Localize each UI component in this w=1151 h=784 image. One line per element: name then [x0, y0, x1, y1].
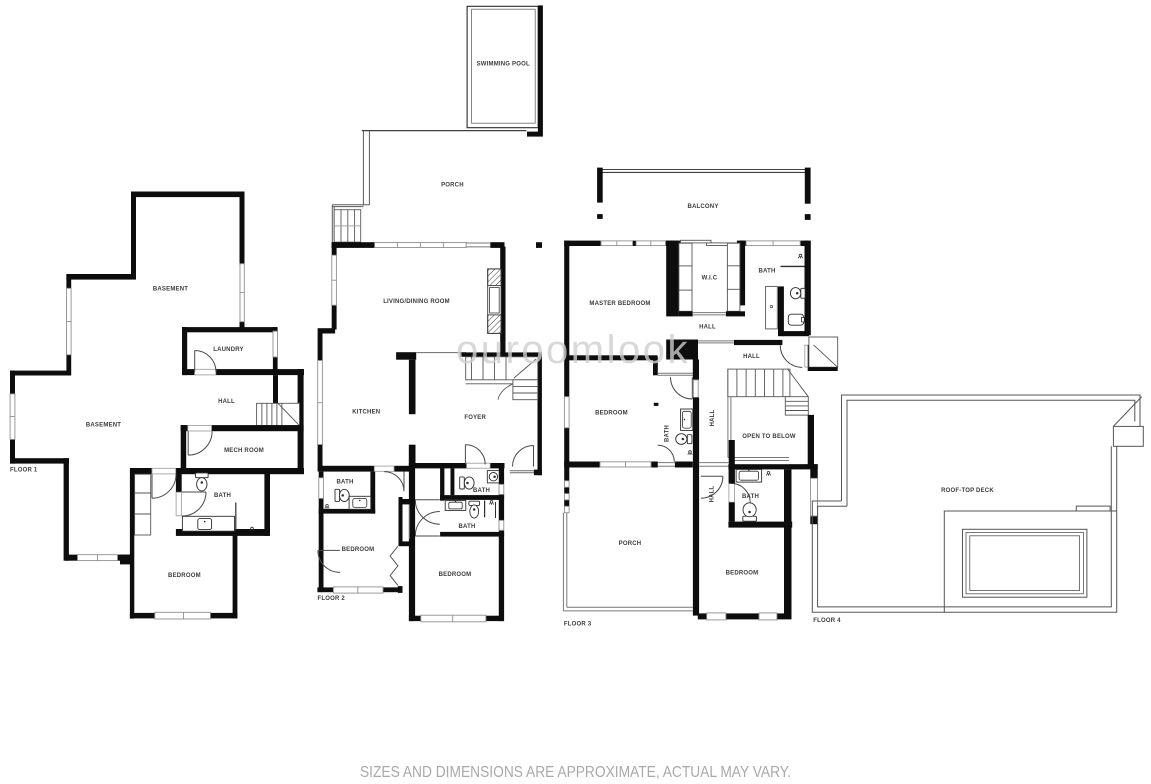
svg-text:PORCH: PORCH: [619, 541, 642, 547]
svg-text:PORCH: PORCH: [441, 183, 464, 189]
svg-text:HALL: HALL: [699, 324, 716, 330]
svg-text:FLOOR 1: FLOOR 1: [10, 468, 38, 474]
svg-text:FLOOR 4: FLOOR 4: [813, 618, 841, 624]
svg-text:ROOF-TOP DECK: ROOF-TOP DECK: [941, 488, 994, 494]
svg-text:BEDROOM: BEDROOM: [595, 411, 628, 417]
svg-text:HALL: HALL: [218, 399, 235, 405]
svg-text:BEDROOM: BEDROOM: [439, 572, 472, 578]
svg-text:KITCHEN: KITCHEN: [352, 409, 380, 415]
svg-text:MASTER BEDROOM: MASTER BEDROOM: [589, 301, 650, 307]
svg-text:SWIMMING POOL: SWIMMING POOL: [477, 62, 530, 68]
svg-text:BEDROOM: BEDROOM: [726, 571, 759, 577]
svg-text:BATH: BATH: [473, 488, 490, 494]
svg-text:BATH: BATH: [758, 269, 775, 275]
svg-text:BASEMENT: BASEMENT: [86, 422, 121, 428]
svg-text:HALL: HALL: [710, 485, 716, 502]
svg-text:LIVING/DINING ROOM: LIVING/DINING ROOM: [383, 299, 450, 305]
svg-text:BATH: BATH: [214, 493, 231, 499]
svg-text:BATH: BATH: [665, 425, 671, 442]
svg-text:BEDROOM: BEDROOM: [168, 573, 201, 579]
svg-text:ouroomlook: ouroomlook: [456, 328, 690, 372]
svg-text:HALL: HALL: [710, 409, 716, 426]
svg-text:FLOOR 3: FLOOR 3: [564, 622, 592, 628]
svg-text:FOYER: FOYER: [464, 415, 486, 421]
svg-text:OPEN TO BELOW: OPEN TO BELOW: [742, 434, 796, 440]
svg-text:BATH: BATH: [458, 524, 475, 530]
svg-text:BEDROOM: BEDROOM: [342, 547, 375, 553]
svg-text:HALL: HALL: [743, 354, 760, 360]
svg-text:BALCONY: BALCONY: [687, 204, 718, 210]
svg-text:FLOOR 2: FLOOR 2: [318, 596, 346, 602]
svg-text:MECH ROOM: MECH ROOM: [224, 448, 264, 454]
svg-text:W.I.C: W.I.C: [702, 276, 718, 282]
svg-text:SIZES AND DIMENSIONS ARE APPRO: SIZES AND DIMENSIONS ARE APPROXIMATE, AC…: [360, 764, 791, 781]
svg-text:BATH: BATH: [742, 494, 759, 500]
svg-text:BATH: BATH: [336, 480, 353, 486]
svg-text:BASEMENT: BASEMENT: [153, 286, 188, 292]
svg-text:LAUNDRY: LAUNDRY: [213, 347, 244, 353]
